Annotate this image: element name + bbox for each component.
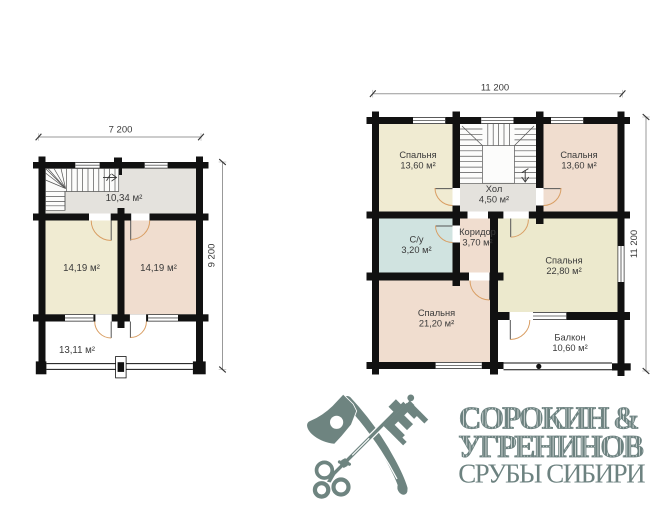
svg-text:10,60 м²: 10,60 м² (552, 343, 587, 353)
svg-text:10,34 м²: 10,34 м² (106, 193, 144, 204)
svg-text:13,11 м²: 13,11 м² (59, 345, 96, 356)
svg-text:3,70 м²: 3,70 м² (462, 237, 492, 247)
svg-text:11 200: 11 200 (481, 82, 509, 93)
svg-text:11 200: 11 200 (629, 230, 640, 258)
svg-text:Спальня: Спальня (418, 308, 455, 318)
svg-text:13,60 м²: 13,60 м² (561, 160, 596, 170)
svg-text:4,50 м²: 4,50 м² (479, 194, 509, 204)
svg-text:13,60 м²: 13,60 м² (400, 160, 435, 170)
svg-text:Спальня: Спальня (560, 150, 597, 160)
svg-text:СРУБЫ СИБИРИ: СРУБЫ СИБИРИ (458, 458, 645, 488)
svg-text:14,19 м²: 14,19 м² (63, 263, 101, 274)
svg-text:9 200: 9 200 (207, 244, 218, 268)
svg-text:Хол: Хол (486, 184, 503, 194)
svg-text:3,20 м²: 3,20 м² (401, 245, 431, 255)
svg-text:22,80 м²: 22,80 м² (546, 266, 581, 276)
svg-text:Спальня: Спальня (545, 256, 582, 266)
svg-text:Спальня: Спальня (399, 150, 436, 160)
svg-text:Балкон: Балкон (554, 333, 585, 343)
svg-text:7 200: 7 200 (109, 124, 133, 135)
svg-text:С/у: С/у (410, 235, 424, 245)
svg-text:21,20 м²: 21,20 м² (419, 318, 454, 328)
svg-text:14,19 м²: 14,19 м² (140, 263, 178, 274)
svg-text:Коридор: Коридор (459, 227, 496, 237)
